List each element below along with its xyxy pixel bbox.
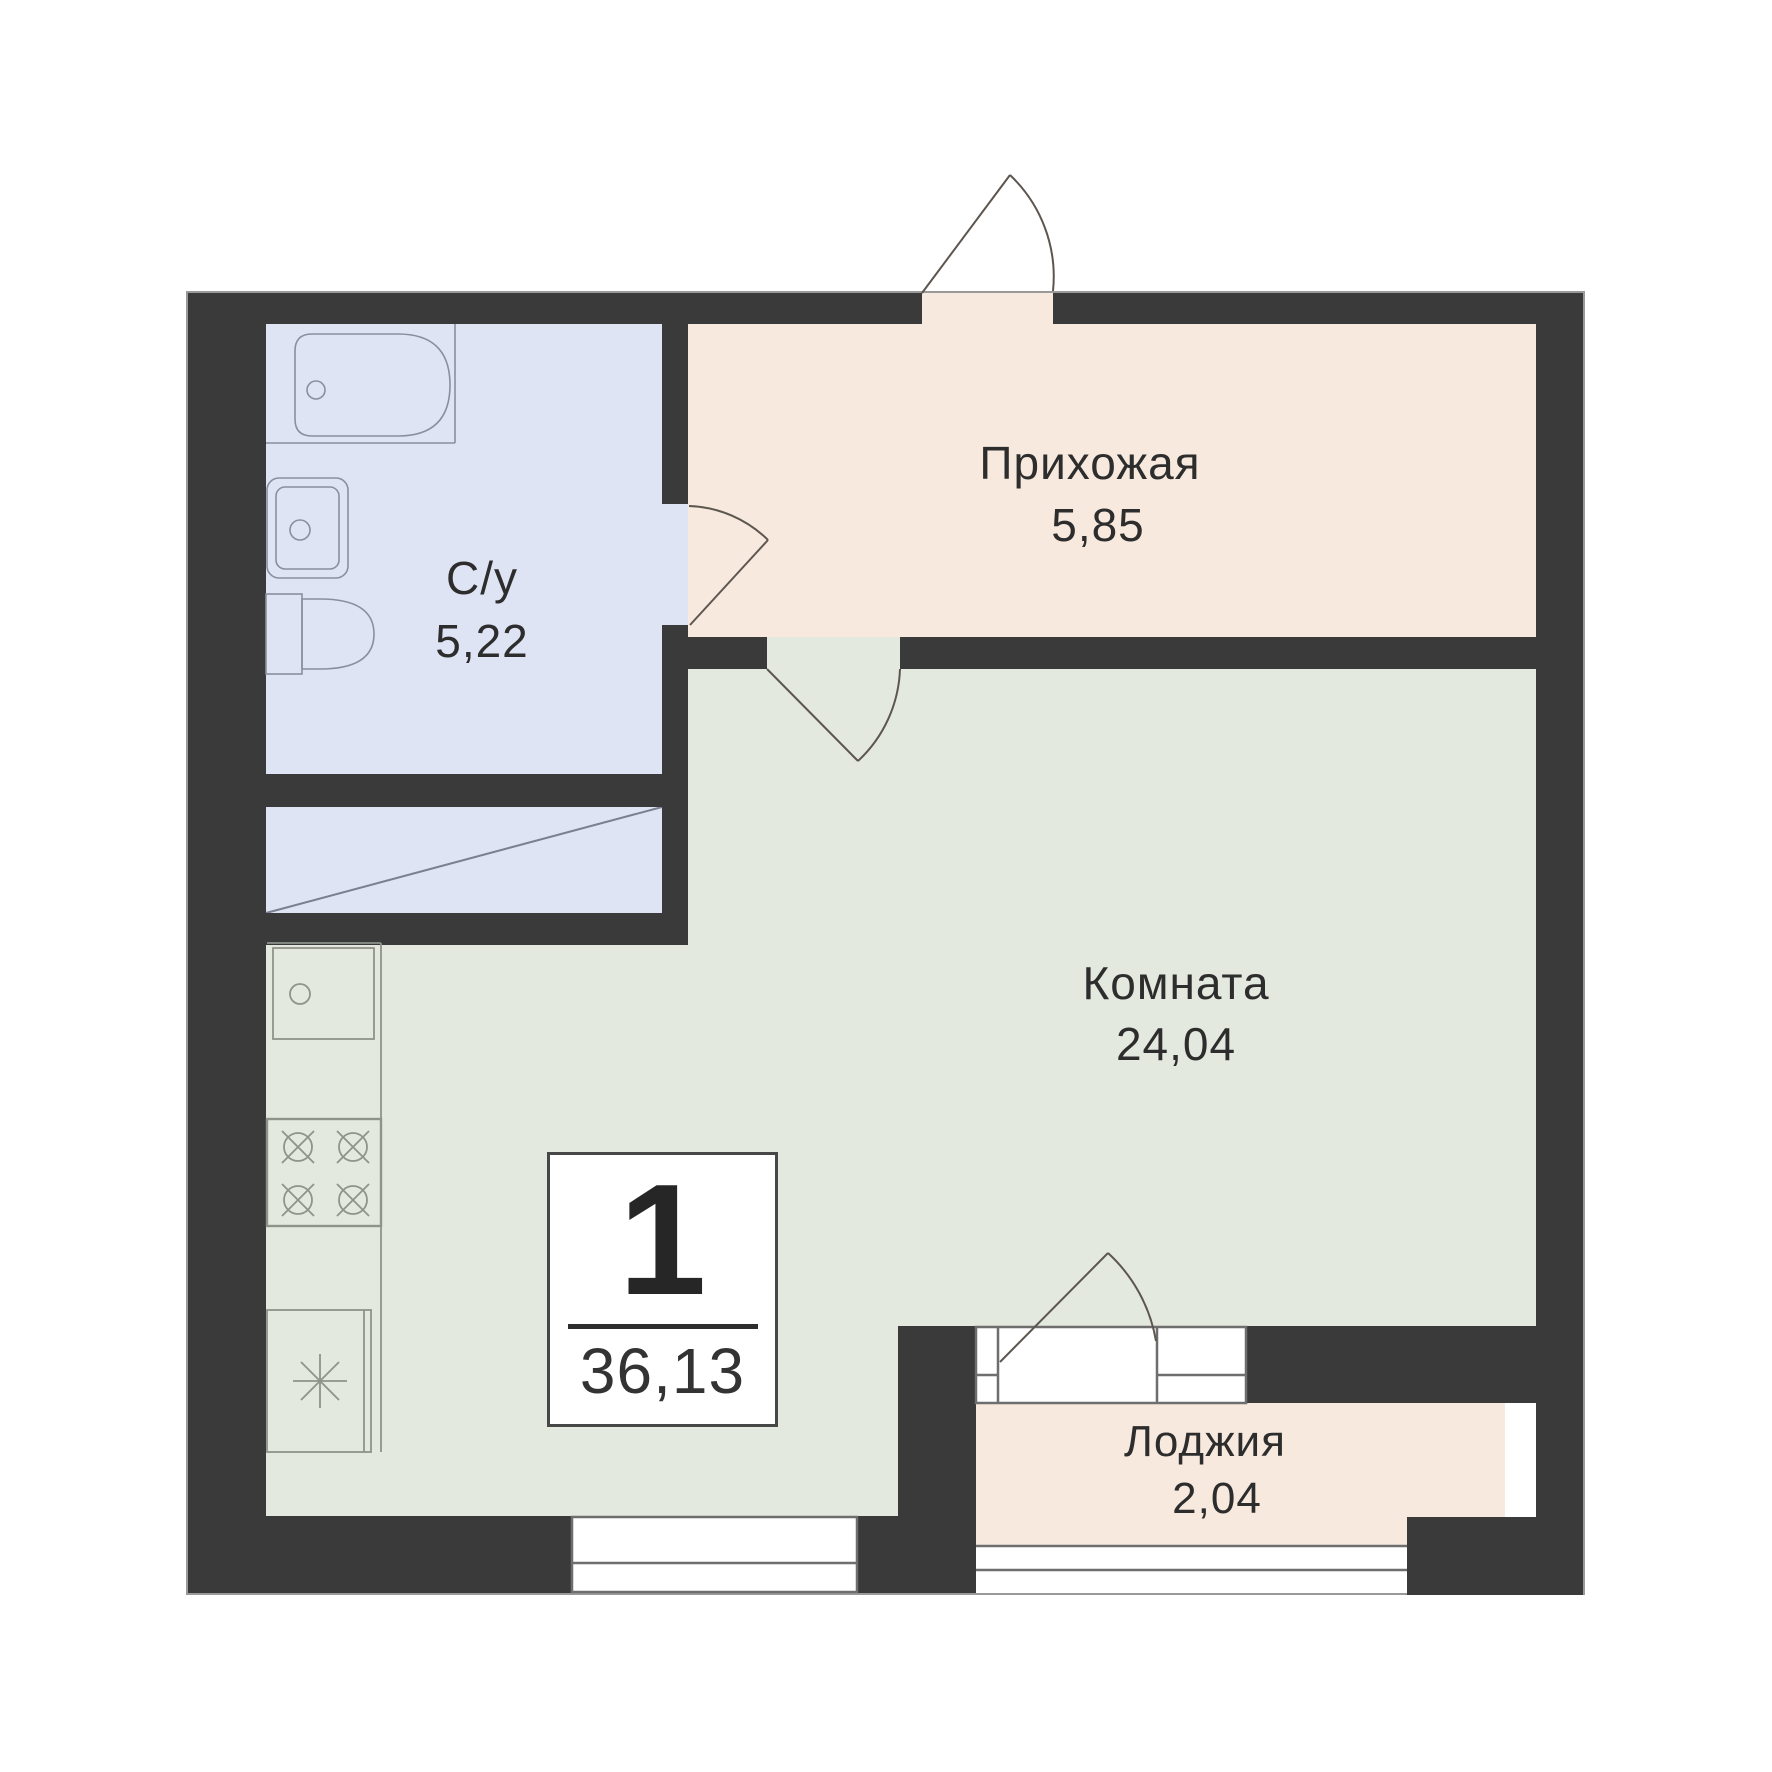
entry-door-swing xyxy=(922,175,1054,293)
unit-total-area: 36,13 xyxy=(580,1339,745,1403)
bathroom-area: 5,22 xyxy=(435,618,529,664)
snowflake-icon xyxy=(293,1354,347,1408)
bathroom-label: С/у xyxy=(446,555,518,601)
loggia-area: 2,04 xyxy=(1172,1477,1262,1521)
unit-rooms-count: 1 xyxy=(619,1163,707,1318)
kitchen-window-frame xyxy=(572,1517,857,1592)
entry-door-arc xyxy=(1010,175,1054,291)
entry-door-reveal xyxy=(922,293,1053,324)
balcony-window-unit xyxy=(976,1327,1246,1403)
wall-hall-room-right xyxy=(900,637,1536,669)
wall-bathroom-bottom xyxy=(266,774,662,807)
wall-loggia-notch xyxy=(1407,1517,1583,1595)
wall-niche-bottom xyxy=(266,913,688,945)
room-door-reveal xyxy=(766,637,900,669)
floor-plan-page: Прихожая 5,85 С/у 5,22 Комната 24,04 Лод… xyxy=(0,0,1772,1772)
balcony-unit-frame xyxy=(976,1327,1246,1403)
hallway-label: Прихожая xyxy=(979,440,1200,486)
unit-info-card: 1 36,13 xyxy=(547,1152,778,1427)
wall-bathroom-hall-lower xyxy=(662,625,688,945)
wall-top-left xyxy=(188,293,922,324)
hallway-area: 5,85 xyxy=(1051,502,1145,548)
floor-plan-drawing xyxy=(0,0,1772,1772)
loggia-railing xyxy=(976,1546,1407,1570)
kitchen-window xyxy=(572,1517,857,1592)
wall-loggia-left-column xyxy=(898,1326,976,1593)
unit-card-divider xyxy=(568,1324,758,1329)
wall-bottom-left xyxy=(188,1516,572,1593)
wall-top-right xyxy=(1053,293,1583,324)
wall-right xyxy=(1536,293,1583,1595)
loggia-label: Лоджия xyxy=(1124,1420,1286,1464)
wall-bathroom-hall-upper xyxy=(662,323,688,504)
wall-hall-room-left xyxy=(662,637,767,669)
entry-door-leaf xyxy=(922,175,1010,293)
wall-left xyxy=(188,293,266,1593)
bathroom-door-reveal xyxy=(662,504,688,625)
room-label: Комната xyxy=(1082,960,1269,1006)
room-area: 24,04 xyxy=(1116,1021,1236,1067)
wall-balcony-right xyxy=(1246,1326,1536,1403)
